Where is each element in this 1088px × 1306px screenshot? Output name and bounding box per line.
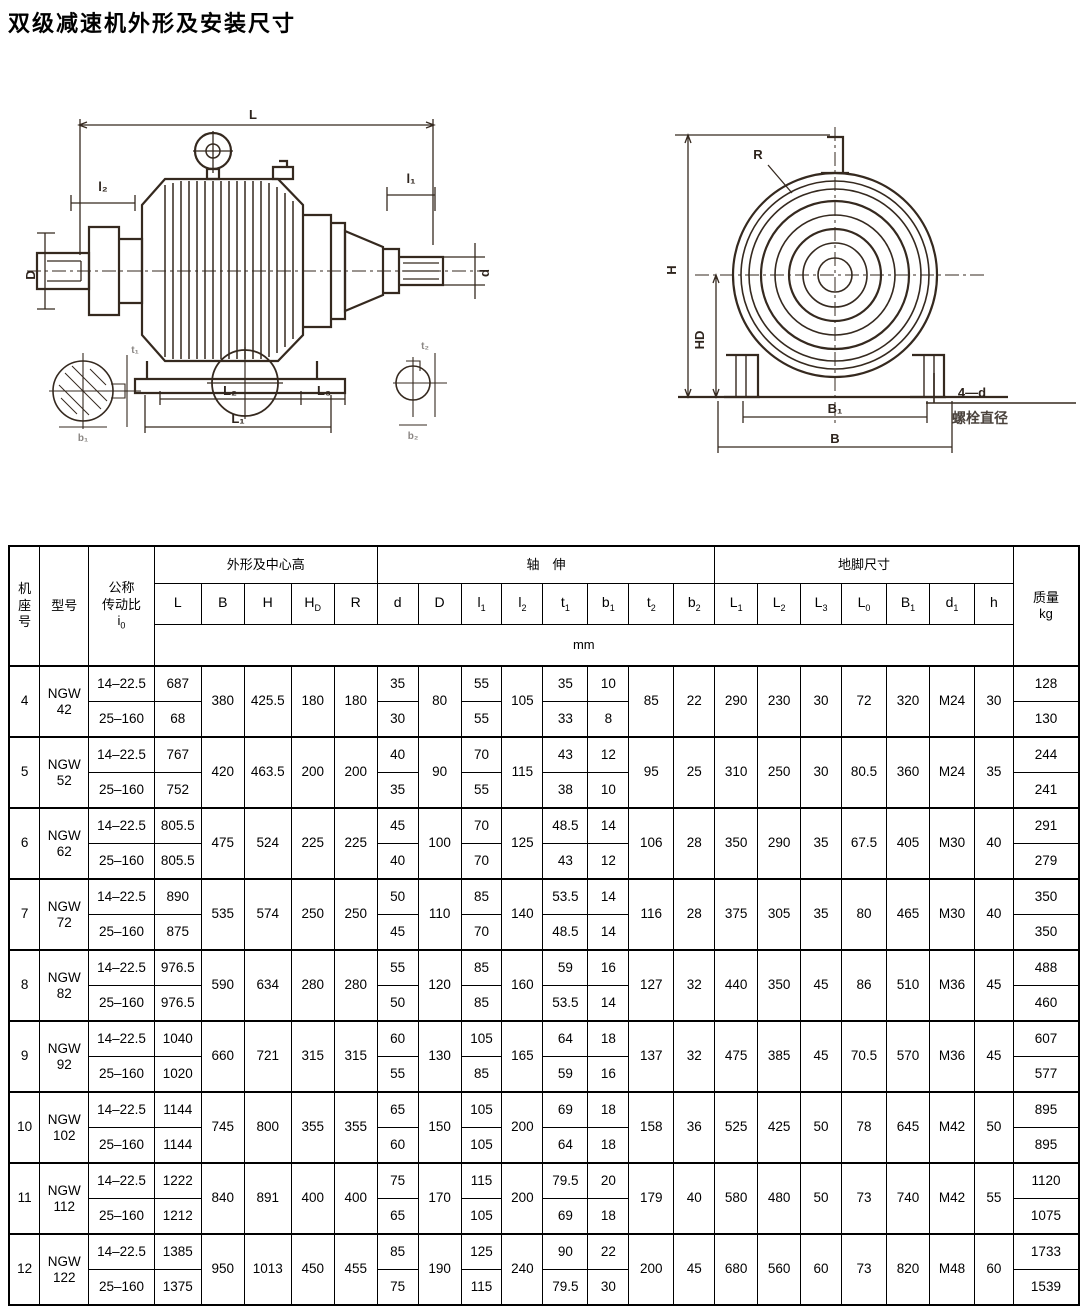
cell-d: 60 <box>377 1021 418 1057</box>
header-row-columns: L B H HD R d D l1 l2 t1 b1 t2 b2 L1 L2 L… <box>9 584 1079 625</box>
cell-L0: 72 <box>842 666 887 737</box>
cell-L: 976.5 <box>154 986 201 1022</box>
cell-model: NGW 42 <box>40 666 89 737</box>
cell-ratio: 14–22.5 <box>89 808 154 844</box>
cell-b1: 30 <box>588 1270 629 1306</box>
cell-t1: 59 <box>543 1057 588 1093</box>
cell-d1: M48 <box>929 1234 974 1305</box>
header-row-groups: 机座号 型号 公称 传动比 i0 外形及中心高 轴 伸 地脚尺寸 质量 kg <box>9 546 1079 584</box>
cell-l1: 70 <box>461 844 502 880</box>
cell-b1: 8 <box>588 702 629 738</box>
cell-H: 574 <box>244 879 291 950</box>
cell-l1: 105 <box>461 1128 502 1164</box>
cell-d1: M42 <box>929 1163 974 1234</box>
cell-HD: 450 <box>291 1234 334 1305</box>
cell-B1: 740 <box>887 1163 930 1234</box>
cell-L2: 560 <box>758 1234 801 1305</box>
cell-t1: 69 <box>543 1199 588 1235</box>
cell-t1: 33 <box>543 702 588 738</box>
col-H: H <box>244 584 291 625</box>
cell-HD: 200 <box>291 737 334 808</box>
cell-frame: 10 <box>9 1092 40 1163</box>
cell-frame: 5 <box>9 737 40 808</box>
cell-L3: 45 <box>801 950 842 1021</box>
cell-model: NGW 122 <box>40 1234 89 1305</box>
dim-label-l2: l₂ <box>98 179 108 194</box>
header-frame: 机座号 <box>9 546 40 666</box>
cell-L2: 350 <box>758 950 801 1021</box>
cell-L3: 50 <box>801 1092 842 1163</box>
col-B1: B1 <box>887 584 930 625</box>
cell-mass: 1075 <box>1013 1199 1079 1235</box>
cell-L2: 480 <box>758 1163 801 1234</box>
cell-h: 35 <box>974 737 1013 808</box>
cell-R: 250 <box>334 879 377 950</box>
cell-l1: 55 <box>461 666 502 702</box>
cell-B: 745 <box>201 1092 244 1163</box>
cell-mass: 577 <box>1013 1057 1079 1093</box>
cell-d1: M42 <box>929 1092 974 1163</box>
cell-t1: 43 <box>543 844 588 880</box>
cell-d: 35 <box>377 773 418 809</box>
cell-B1: 320 <box>887 666 930 737</box>
cell-t2: 179 <box>629 1163 674 1234</box>
cell-h: 45 <box>974 1021 1013 1092</box>
cell-L: 752 <box>154 773 201 809</box>
cell-B: 475 <box>201 808 244 879</box>
cell-ratio: 14–22.5 <box>89 879 154 915</box>
cell-h: 45 <box>974 950 1013 1021</box>
cell-B1: 405 <box>887 808 930 879</box>
cell-B1: 820 <box>887 1234 930 1305</box>
cell-D: 130 <box>418 1021 461 1092</box>
cell-R: 455 <box>334 1234 377 1305</box>
cell-L1: 310 <box>715 737 758 808</box>
cell-L2: 230 <box>758 666 801 737</box>
cell-HD: 355 <box>291 1092 334 1163</box>
cell-b1: 22 <box>588 1234 629 1270</box>
header-group-foot: 地脚尺寸 <box>715 546 1014 584</box>
cell-t1: 43 <box>543 737 588 773</box>
cell-mass: 291 <box>1013 808 1079 844</box>
cell-t1: 64 <box>543 1021 588 1057</box>
cell-L2: 425 <box>758 1092 801 1163</box>
cell-l2: 125 <box>502 808 543 879</box>
cell-t2: 127 <box>629 950 674 1021</box>
dim-label-L2: L₂ <box>223 383 237 398</box>
cell-HD: 400 <box>291 1163 334 1234</box>
cell-t2: 158 <box>629 1092 674 1163</box>
cell-B: 660 <box>201 1021 244 1092</box>
cell-l1: 115 <box>461 1163 502 1199</box>
dim-label-L1: L₁ <box>231 411 244 426</box>
dim-label-d: d <box>477 269 492 277</box>
cell-frame: 8 <box>9 950 40 1021</box>
cell-b1: 16 <box>588 950 629 986</box>
cell-B: 535 <box>201 879 244 950</box>
cell-t2: 200 <box>629 1234 674 1305</box>
cell-L1: 375 <box>715 879 758 950</box>
table-row: 4 NGW 42 14–22.5 687 380 425.5 180 180 3… <box>9 666 1079 702</box>
cell-d: 30 <box>377 702 418 738</box>
header-group-outline: 外形及中心高 <box>154 546 377 584</box>
cell-l1: 70 <box>461 808 502 844</box>
cell-L0: 73 <box>842 1163 887 1234</box>
col-L0: L0 <box>842 584 887 625</box>
cell-d1: M24 <box>929 737 974 808</box>
cell-d: 65 <box>377 1199 418 1235</box>
cell-HD: 315 <box>291 1021 334 1092</box>
cell-t1: 53.5 <box>543 879 588 915</box>
cell-mass: 241 <box>1013 773 1079 809</box>
cell-frame: 7 <box>9 879 40 950</box>
cell-b2: 28 <box>674 808 715 879</box>
cell-d: 40 <box>377 737 418 773</box>
cell-L: 767 <box>154 737 201 773</box>
cell-frame: 4 <box>9 666 40 737</box>
cell-l1: 115 <box>461 1270 502 1306</box>
side-view-lines <box>27 131 485 419</box>
cell-b1: 10 <box>588 773 629 809</box>
col-b1: b1 <box>588 584 629 625</box>
dim-label-HD: HD <box>692 331 707 350</box>
cell-b1: 14 <box>588 808 629 844</box>
dim-label-t1: t₁ <box>131 345 138 356</box>
cell-l2: 105 <box>502 666 543 737</box>
cell-B: 950 <box>201 1234 244 1305</box>
cell-l1: 55 <box>461 773 502 809</box>
cell-ratio: 14–22.5 <box>89 1234 154 1270</box>
cell-L: 1222 <box>154 1163 201 1199</box>
cell-L: 1144 <box>154 1128 201 1164</box>
cell-H: 463.5 <box>244 737 291 808</box>
cell-l1: 125 <box>461 1234 502 1270</box>
cell-d1: M30 <box>929 879 974 950</box>
cell-t2: 106 <box>629 808 674 879</box>
cell-l2: 165 <box>502 1021 543 1092</box>
page-title: 双级减速机外形及安装尺寸 <box>8 6 296 38</box>
cell-L1: 475 <box>715 1021 758 1092</box>
side-view-shaft-sections <box>49 353 447 429</box>
cell-d1: M36 <box>929 1021 974 1092</box>
dim-label-t2: t₂ <box>421 341 429 352</box>
cell-ratio: 14–22.5 <box>89 1092 154 1128</box>
cell-h: 55 <box>974 1163 1013 1234</box>
cell-D: 150 <box>418 1092 461 1163</box>
col-t1: t1 <box>543 584 588 625</box>
cell-H: 891 <box>244 1163 291 1234</box>
cell-model: NGW 92 <box>40 1021 89 1092</box>
cell-D: 90 <box>418 737 461 808</box>
cell-l2: 240 <box>502 1234 543 1305</box>
cell-L3: 35 <box>801 879 842 950</box>
cell-t1: 79.5 <box>543 1270 588 1306</box>
cell-H: 425.5 <box>244 666 291 737</box>
cell-b2: 25 <box>674 737 715 808</box>
table-row: 9 NGW 92 14–22.5 1040 660 721 315 315 60… <box>9 1021 1079 1057</box>
table-row: 8 NGW 82 14–22.5 976.5 590 634 280 280 5… <box>9 950 1079 986</box>
cell-H: 524 <box>244 808 291 879</box>
cell-t2: 95 <box>629 737 674 808</box>
cell-L: 1375 <box>154 1270 201 1306</box>
table-row: 10 NGW 102 14–22.5 1144 745 800 355 355 … <box>9 1092 1079 1128</box>
cell-L1: 290 <box>715 666 758 737</box>
table-row: 5 NGW 52 14–22.5 767 420 463.5 200 200 4… <box>9 737 1079 773</box>
cell-B1: 570 <box>887 1021 930 1092</box>
cell-frame: 9 <box>9 1021 40 1092</box>
table-row: 12 NGW 122 14–22.5 1385 950 1013 450 455… <box>9 1234 1079 1270</box>
cell-L2: 385 <box>758 1021 801 1092</box>
cell-L1: 350 <box>715 808 758 879</box>
dim-label-B: B <box>830 431 839 446</box>
cell-L0: 70.5 <box>842 1021 887 1092</box>
col-D: D <box>418 584 461 625</box>
cell-ratio: 25–160 <box>89 844 154 880</box>
cell-b2: 22 <box>674 666 715 737</box>
cell-mass: 1539 <box>1013 1270 1079 1306</box>
cell-d: 55 <box>377 1057 418 1093</box>
cell-ratio: 25–160 <box>89 915 154 951</box>
cell-L0: 73 <box>842 1234 887 1305</box>
cell-B: 380 <box>201 666 244 737</box>
cell-frame: 12 <box>9 1234 40 1305</box>
cell-model: NGW 82 <box>40 950 89 1021</box>
cell-mass: 244 <box>1013 737 1079 773</box>
cell-l1: 70 <box>461 915 502 951</box>
col-L: L <box>154 584 201 625</box>
cell-R: 400 <box>334 1163 377 1234</box>
table-row: 6 NGW 62 14–22.5 805.5 475 524 225 225 4… <box>9 808 1079 844</box>
cell-ratio: 25–160 <box>89 986 154 1022</box>
cell-l2: 200 <box>502 1092 543 1163</box>
dim-label-L: L <box>249 107 257 122</box>
cell-model: NGW 52 <box>40 737 89 808</box>
cell-L: 68 <box>154 702 201 738</box>
cell-D: 80 <box>418 666 461 737</box>
dim-label-l1: l₁ <box>407 171 416 186</box>
cell-b1: 18 <box>588 1092 629 1128</box>
cell-mass: 488 <box>1013 950 1079 986</box>
col-l1: l1 <box>461 584 502 625</box>
cell-mass: 350 <box>1013 879 1079 915</box>
cell-L: 805.5 <box>154 808 201 844</box>
cell-L: 875 <box>154 915 201 951</box>
dim-label-L3: L₃ <box>317 383 331 398</box>
cell-L2: 305 <box>758 879 801 950</box>
col-d: d <box>377 584 418 625</box>
cell-d: 40 <box>377 844 418 880</box>
cell-B: 590 <box>201 950 244 1021</box>
cell-L: 1144 <box>154 1092 201 1128</box>
cell-b2: 40 <box>674 1163 715 1234</box>
cell-mass: 279 <box>1013 844 1079 880</box>
cell-b1: 14 <box>588 915 629 951</box>
cell-L3: 30 <box>801 737 842 808</box>
cell-H: 1013 <box>244 1234 291 1305</box>
cell-mass: 1120 <box>1013 1163 1079 1199</box>
cell-L: 1385 <box>154 1234 201 1270</box>
cell-l2: 115 <box>502 737 543 808</box>
cell-L0: 67.5 <box>842 808 887 879</box>
header-model: 型号 <box>40 546 89 666</box>
cell-d: 55 <box>377 950 418 986</box>
col-t2: t2 <box>629 584 674 625</box>
cell-h: 50 <box>974 1092 1013 1163</box>
cell-HD: 180 <box>291 666 334 737</box>
cell-d1: M24 <box>929 666 974 737</box>
col-L1: L1 <box>715 584 758 625</box>
cell-L: 1212 <box>154 1199 201 1235</box>
cell-d: 75 <box>377 1270 418 1306</box>
cell-b1: 20 <box>588 1163 629 1199</box>
cell-d: 60 <box>377 1128 418 1164</box>
cell-l2: 140 <box>502 879 543 950</box>
cell-t1: 69 <box>543 1092 588 1128</box>
col-h: h <box>974 584 1013 625</box>
cell-L0: 80.5 <box>842 737 887 808</box>
cell-L0: 80 <box>842 879 887 950</box>
cell-h: 40 <box>974 808 1013 879</box>
cell-d: 75 <box>377 1163 418 1199</box>
cell-mass: 607 <box>1013 1021 1079 1057</box>
col-d1: d1 <box>929 584 974 625</box>
cell-HD: 280 <box>291 950 334 1021</box>
cell-ratio: 14–22.5 <box>89 666 154 702</box>
cell-l1: 85 <box>461 986 502 1022</box>
col-L2: L2 <box>758 584 801 625</box>
cell-l1: 105 <box>461 1021 502 1057</box>
cell-t1: 79.5 <box>543 1163 588 1199</box>
cell-d: 50 <box>377 879 418 915</box>
cell-D: 190 <box>418 1234 461 1305</box>
cell-h: 30 <box>974 666 1013 737</box>
cell-L0: 86 <box>842 950 887 1021</box>
dim-label-b1: b₁ <box>78 433 88 444</box>
cell-R: 225 <box>334 808 377 879</box>
cell-L3: 50 <box>801 1163 842 1234</box>
cell-H: 721 <box>244 1021 291 1092</box>
cell-B: 420 <box>201 737 244 808</box>
col-L3: L3 <box>801 584 842 625</box>
cell-d: 85 <box>377 1234 418 1270</box>
header-group-shaft: 轴 伸 <box>377 546 715 584</box>
front-view-drawing: R H HD B₁ B 4—d 螺栓直径 <box>640 105 1088 475</box>
cell-h: 40 <box>974 879 1013 950</box>
front-view-lines <box>678 127 1008 425</box>
cell-t1: 53.5 <box>543 986 588 1022</box>
cell-b2: 45 <box>674 1234 715 1305</box>
cell-t1: 35 <box>543 666 588 702</box>
cell-L2: 250 <box>758 737 801 808</box>
cell-ratio: 25–160 <box>89 702 154 738</box>
cell-d: 65 <box>377 1092 418 1128</box>
col-B: B <box>201 584 244 625</box>
cell-d: 45 <box>377 808 418 844</box>
cell-H: 800 <box>244 1092 291 1163</box>
cell-L0: 78 <box>842 1092 887 1163</box>
cell-HD: 250 <box>291 879 334 950</box>
cell-D: 170 <box>418 1163 461 1234</box>
cell-B1: 465 <box>887 879 930 950</box>
cell-t2: 137 <box>629 1021 674 1092</box>
cell-L: 805.5 <box>154 844 201 880</box>
cell-b1: 18 <box>588 1199 629 1235</box>
col-l2: l2 <box>502 584 543 625</box>
cell-B1: 645 <box>887 1092 930 1163</box>
cell-model: NGW 62 <box>40 808 89 879</box>
cell-L: 1040 <box>154 1021 201 1057</box>
cell-D: 120 <box>418 950 461 1021</box>
cell-t1: 48.5 <box>543 915 588 951</box>
cell-b1: 12 <box>588 737 629 773</box>
cell-mass: 128 <box>1013 666 1079 702</box>
cell-H: 634 <box>244 950 291 1021</box>
cell-d1: M36 <box>929 950 974 1021</box>
col-b2: b2 <box>674 584 715 625</box>
cell-L3: 60 <box>801 1234 842 1305</box>
cell-L1: 525 <box>715 1092 758 1163</box>
cell-frame: 11 <box>9 1163 40 1234</box>
cell-L1: 680 <box>715 1234 758 1305</box>
cell-b1: 16 <box>588 1057 629 1093</box>
cell-l2: 200 <box>502 1163 543 1234</box>
cell-b1: 18 <box>588 1021 629 1057</box>
cell-t1: 48.5 <box>543 808 588 844</box>
cell-L: 890 <box>154 879 201 915</box>
cell-t2: 116 <box>629 879 674 950</box>
cell-R: 280 <box>334 950 377 1021</box>
unit-label: mm <box>154 625 1013 667</box>
col-HD: HD <box>291 584 334 625</box>
cell-mass: 1733 <box>1013 1234 1079 1270</box>
cell-b1: 10 <box>588 666 629 702</box>
cell-b2: 28 <box>674 879 715 950</box>
cell-R: 315 <box>334 1021 377 1092</box>
cell-B1: 360 <box>887 737 930 808</box>
cell-ratio: 14–22.5 <box>89 1021 154 1057</box>
bolt-count-label: 4—d <box>958 385 986 400</box>
cell-l1: 70 <box>461 737 502 773</box>
dim-label-D: D <box>23 270 38 279</box>
bolt-note-label: 螺栓直径 <box>952 410 1008 426</box>
cell-ratio: 14–22.5 <box>89 950 154 986</box>
cell-model: NGW 72 <box>40 879 89 950</box>
dim-label-H: H <box>664 265 679 274</box>
cell-l1: 105 <box>461 1092 502 1128</box>
cell-D: 110 <box>418 879 461 950</box>
cell-ratio: 25–160 <box>89 1057 154 1093</box>
dim-label-R: R <box>753 147 763 162</box>
cell-L2: 290 <box>758 808 801 879</box>
cell-mass: 895 <box>1013 1128 1079 1164</box>
cell-b2: 36 <box>674 1092 715 1163</box>
cell-l1: 105 <box>461 1199 502 1235</box>
cell-R: 200 <box>334 737 377 808</box>
cell-ratio: 25–160 <box>89 1199 154 1235</box>
table-row: 11 NGW 112 14–22.5 1222 840 891 400 400 … <box>9 1163 1079 1199</box>
dim-label-b2: b₂ <box>408 431 419 442</box>
cell-D: 100 <box>418 808 461 879</box>
cell-b2: 32 <box>674 950 715 1021</box>
table-row: 7 NGW 72 14–22.5 890 535 574 250 250 50 … <box>9 879 1079 915</box>
cell-l1: 85 <box>461 1057 502 1093</box>
cell-b2: 32 <box>674 1021 715 1092</box>
cell-R: 355 <box>334 1092 377 1163</box>
header-mass: 质量 kg <box>1013 546 1079 666</box>
cell-L: 976.5 <box>154 950 201 986</box>
cell-b1: 14 <box>588 986 629 1022</box>
cell-b1: 18 <box>588 1128 629 1164</box>
